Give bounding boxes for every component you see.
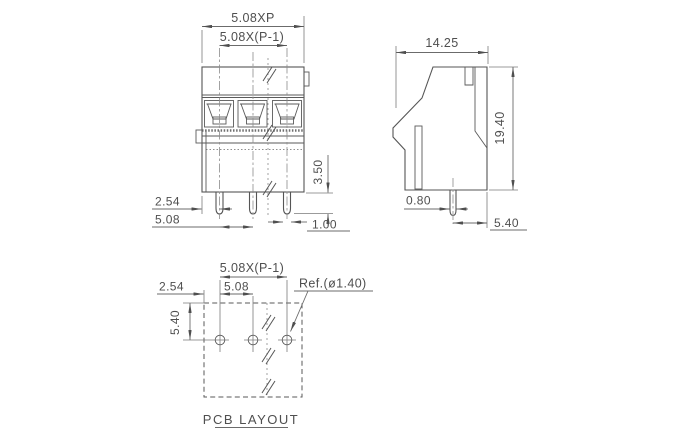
terminal-funnel-2 [238, 101, 267, 128]
dim-edge-to-row-label: 5.40 [168, 310, 182, 335]
front-view: 5.08XP 5.08X(P-1) 2.54 5.08 1.00 3.50 [152, 11, 350, 232]
terminal-funnel-1 [205, 101, 234, 128]
dim-overall-pitch-label: 5.08XP [231, 11, 274, 25]
dim-edge-to-pin-label: 2.54 [155, 195, 180, 209]
dim-pin-thickness-label: 0.80 [406, 194, 431, 208]
technical-drawing-page: 5.08XP 5.08X(P-1) 2.54 5.08 1.00 3.50 [0, 0, 680, 440]
side-inner-edge [475, 67, 487, 148]
dim-height-label: 19.40 [493, 111, 507, 144]
dim-pin-span-label: 5.08X(P-1) [220, 30, 284, 44]
dim-edge-to-pad-label: 2.54 [159, 280, 184, 294]
dim-depth-label: 14.25 [425, 36, 458, 50]
dim-pad-pitch-label: 5.08 [224, 280, 249, 294]
side-top-slot [465, 67, 473, 85]
dim-pitch-label: 5.08 [155, 213, 180, 227]
break-mark-pcb [262, 303, 275, 397]
dim-hole-ref-label: Ref.(ø1.40) [299, 277, 367, 291]
side-view: 14.25 19.40 0.80 5.40 [393, 36, 527, 230]
dim-pin-width-label: 1.00 [312, 218, 337, 232]
front-left-protrusion [196, 130, 202, 143]
dim-pin-to-front-label: 5.40 [494, 216, 519, 230]
dim-pad-span-label: 5.08X(P-1) [220, 261, 284, 275]
side-screw-slot [415, 126, 422, 189]
pcb-caption: PCB LAYOUT [203, 412, 299, 427]
dim-pin-protrusion-label: 3.50 [311, 160, 325, 185]
front-side-tab [304, 72, 309, 86]
terminal-block-drawing: 5.08XP 5.08X(P-1) 2.54 5.08 1.00 3.50 [0, 0, 680, 440]
callout-leader-line [291, 291, 309, 332]
pcb-layout-view: 5.08X(P-1) 2.54 5.08 5.40 Ref.(ø1.40) PC… [157, 261, 373, 428]
